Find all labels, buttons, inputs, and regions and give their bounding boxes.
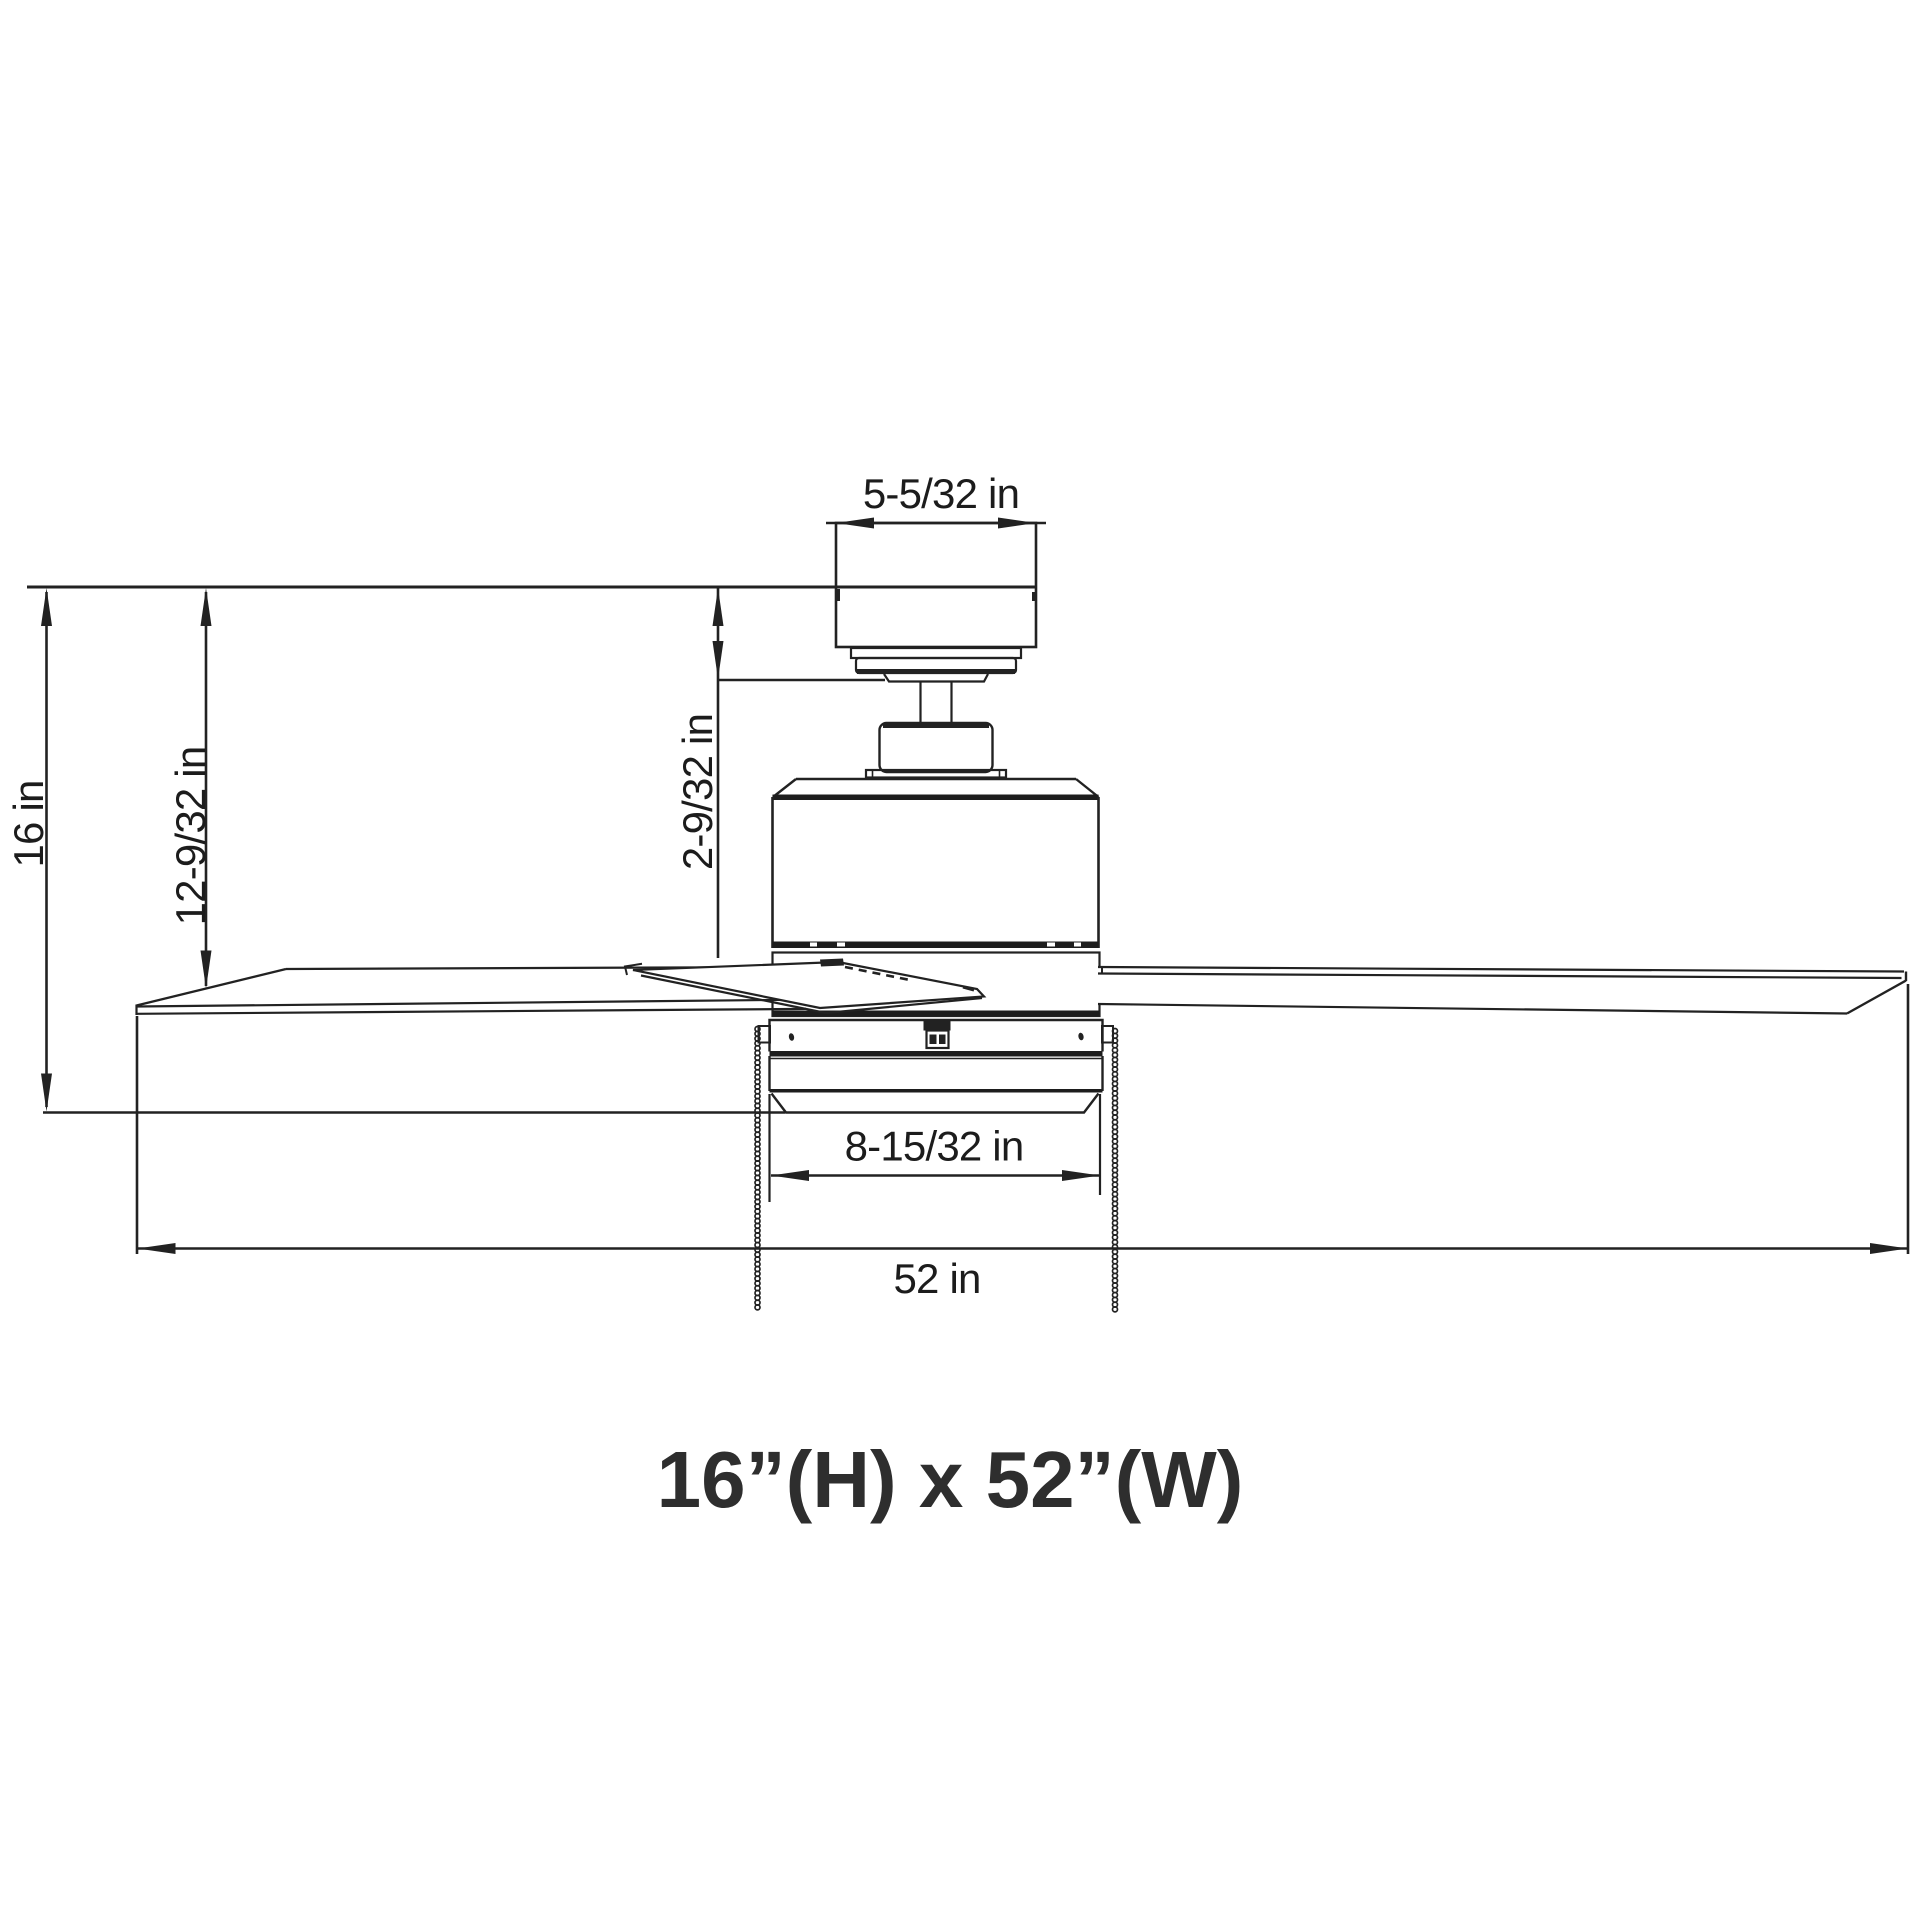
svg-text:16 in: 16 in — [5, 780, 52, 867]
svg-text:16”(H) x 52”(W): 16”(H) x 52”(W) — [657, 1435, 1244, 1524]
svg-text:52 in: 52 in — [893, 1255, 980, 1302]
svg-text:8-15/32 in: 8-15/32 in — [845, 1123, 1024, 1170]
svg-text:2-9/32 in: 2-9/32 in — [674, 714, 721, 870]
svg-text:5-5/32 in: 5-5/32 in — [863, 470, 1019, 517]
svg-text:12-9/32 in: 12-9/32 in — [167, 747, 214, 926]
